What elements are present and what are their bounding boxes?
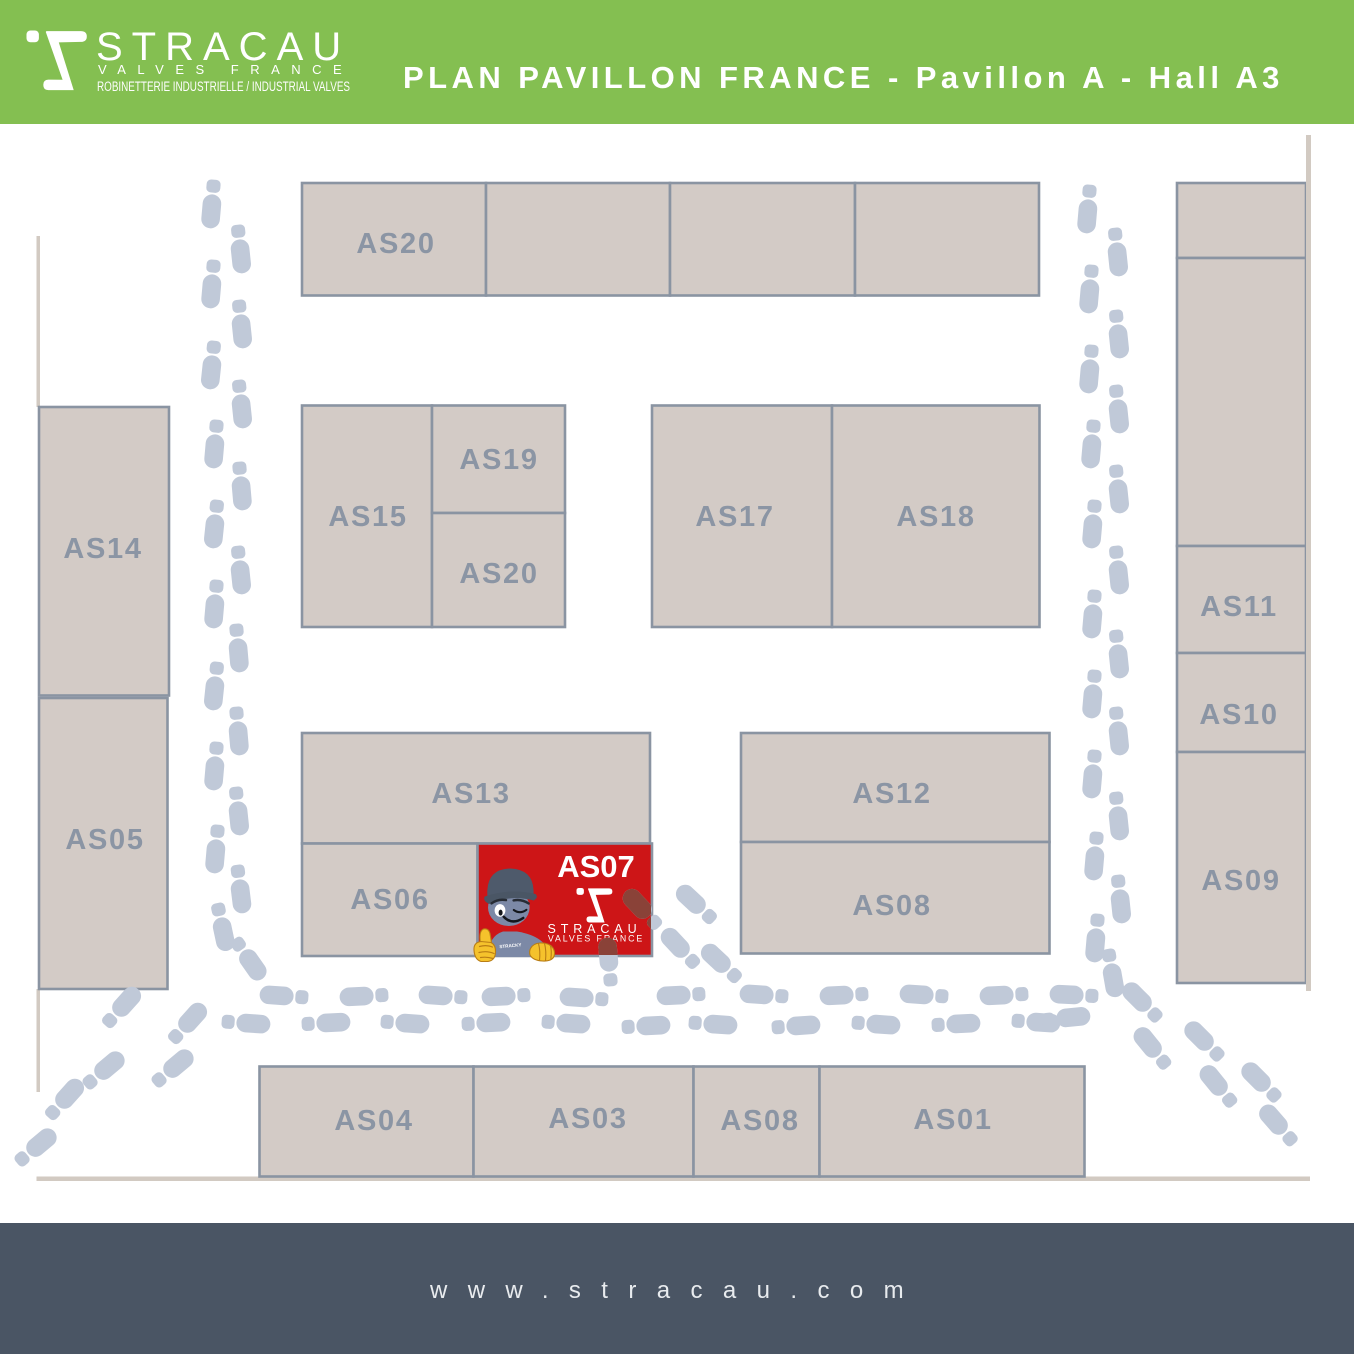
svg-text:AS14: AS14 [63,533,142,565]
svg-text:AS03: AS03 [548,1103,627,1135]
svg-text:AS13: AS13 [431,778,510,810]
svg-text:AS05: AS05 [65,824,144,856]
svg-text:AS20: AS20 [459,558,538,590]
svg-text:AS19: AS19 [459,444,538,476]
svg-text:AS10: AS10 [1199,699,1278,731]
svg-text:VALVES FRANCE: VALVES FRANCE [548,934,644,944]
svg-text:AS20: AS20 [356,228,435,260]
svg-text:AS18: AS18 [896,501,975,533]
svg-text:VALVES FRANCE: VALVES FRANCE [98,62,353,77]
svg-text:AS11: AS11 [1200,591,1278,623]
svg-text:AS09: AS09 [1201,865,1280,897]
svg-text:AS12: AS12 [852,778,931,810]
svg-text:AS04: AS04 [334,1105,413,1137]
svg-text:AS06: AS06 [350,884,429,916]
svg-text:AS08: AS08 [852,890,931,922]
svg-text:AS15: AS15 [328,501,407,533]
svg-text:www.stracau.com: www.stracau.com [429,1277,924,1304]
svg-text:AS01: AS01 [913,1104,992,1136]
svg-text:AS08: AS08 [720,1105,799,1137]
svg-text:AS17: AS17 [695,501,774,533]
svg-text:PLAN PAVILLON FRANCE - Pavillo: PLAN PAVILLON FRANCE - Pavillon A - Hall… [403,60,1284,95]
svg-text:AS07: AS07 [557,849,635,884]
svg-text:ROBINETTERIE INDUSTRIELLE / IN: ROBINETTERIE INDUSTRIELLE / INDUSTRIAL V… [97,79,350,94]
